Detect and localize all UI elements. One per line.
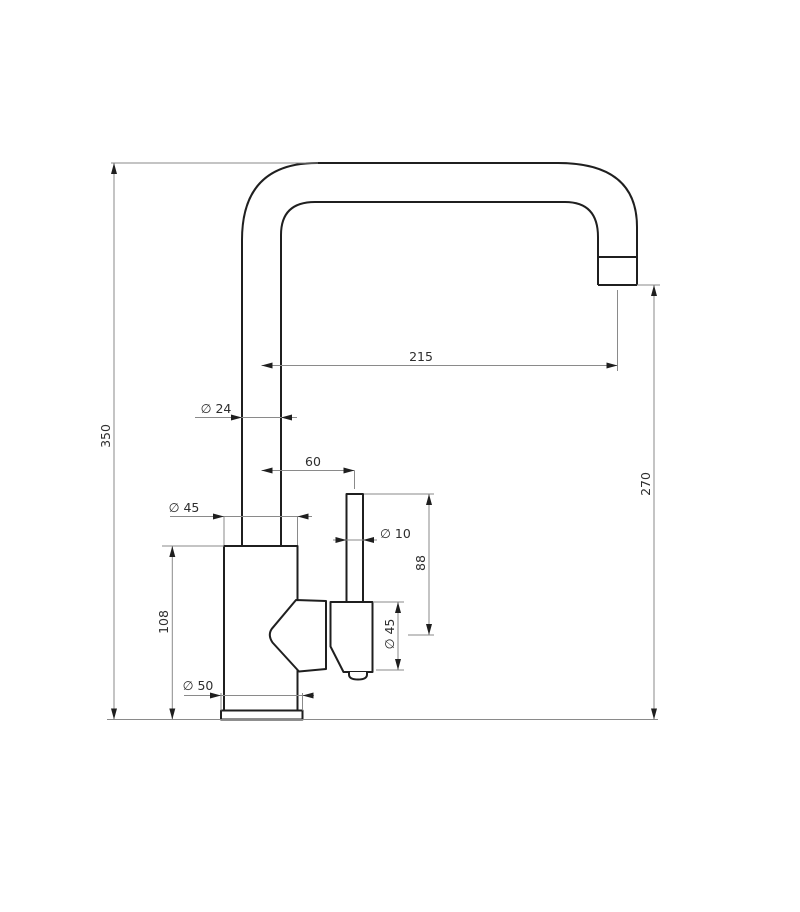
dim-handle-offset-label: 60 xyxy=(305,454,321,469)
faucet-outline xyxy=(221,163,637,720)
handle-cartridge xyxy=(331,602,373,672)
dim-body-height-label: 108 xyxy=(156,610,171,634)
dim-base-diameter-label: ∅ 50 xyxy=(183,678,214,693)
cartridge-nub xyxy=(349,672,367,680)
dim-body-height: 108 xyxy=(156,546,224,720)
faucet-technical-drawing: 350 270 215 ∅ 24 xyxy=(0,0,800,912)
dim-spout-reach: 215 xyxy=(262,290,618,371)
dim-overall-height-label: 350 xyxy=(98,424,113,448)
technical-drawing-page: 350 270 215 ∅ 24 xyxy=(0,0,800,912)
dim-body-diameter: ∅ 45 xyxy=(169,500,312,545)
dim-outlet-height-label: 270 xyxy=(638,472,653,496)
dim-cartridge-diameter: ∅ 45 xyxy=(374,602,404,670)
spout-inner-profile xyxy=(281,202,598,546)
handle-stem xyxy=(347,494,364,602)
spout-outer-profile xyxy=(242,163,637,546)
dim-handle-height: 88 xyxy=(364,494,434,635)
dim-cartridge-diameter-label: ∅ 45 xyxy=(382,619,397,650)
dim-body-diameter-label: ∅ 45 xyxy=(169,500,200,515)
dim-outlet-height: 270 xyxy=(637,285,660,720)
dim-stem-diameter: ∅ 10 xyxy=(333,526,411,543)
dim-handle-height-label: 88 xyxy=(413,555,428,571)
dim-tube-diameter-label: ∅ 24 xyxy=(201,401,232,416)
dim-handle-offset: 60 xyxy=(262,454,355,489)
dim-spout-reach-label: 215 xyxy=(409,349,433,364)
dim-stem-diameter-label: ∅ 10 xyxy=(380,526,411,541)
base-flange xyxy=(221,711,303,720)
